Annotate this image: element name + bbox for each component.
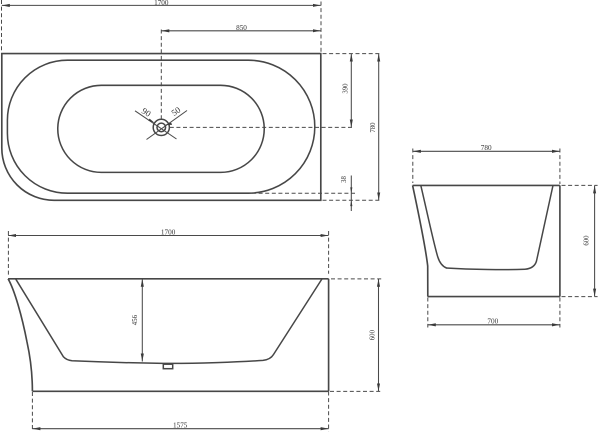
svg-text:90: 90 [140, 106, 153, 120]
svg-text:456: 456 [132, 314, 139, 325]
svg-text:780: 780 [370, 122, 377, 133]
svg-text:600: 600 [369, 329, 376, 340]
svg-text:390: 390 [342, 83, 349, 94]
svg-text:600: 600 [584, 235, 591, 246]
svg-text:780: 780 [481, 144, 492, 152]
svg-text:1575: 1575 [173, 422, 188, 430]
svg-text:1700: 1700 [161, 228, 176, 236]
svg-text:1700: 1700 [154, 0, 169, 7]
svg-text:50: 50 [169, 104, 182, 118]
svg-text:38: 38 [341, 176, 348, 183]
svg-text:700: 700 [487, 318, 498, 326]
svg-text:850: 850 [236, 24, 247, 32]
